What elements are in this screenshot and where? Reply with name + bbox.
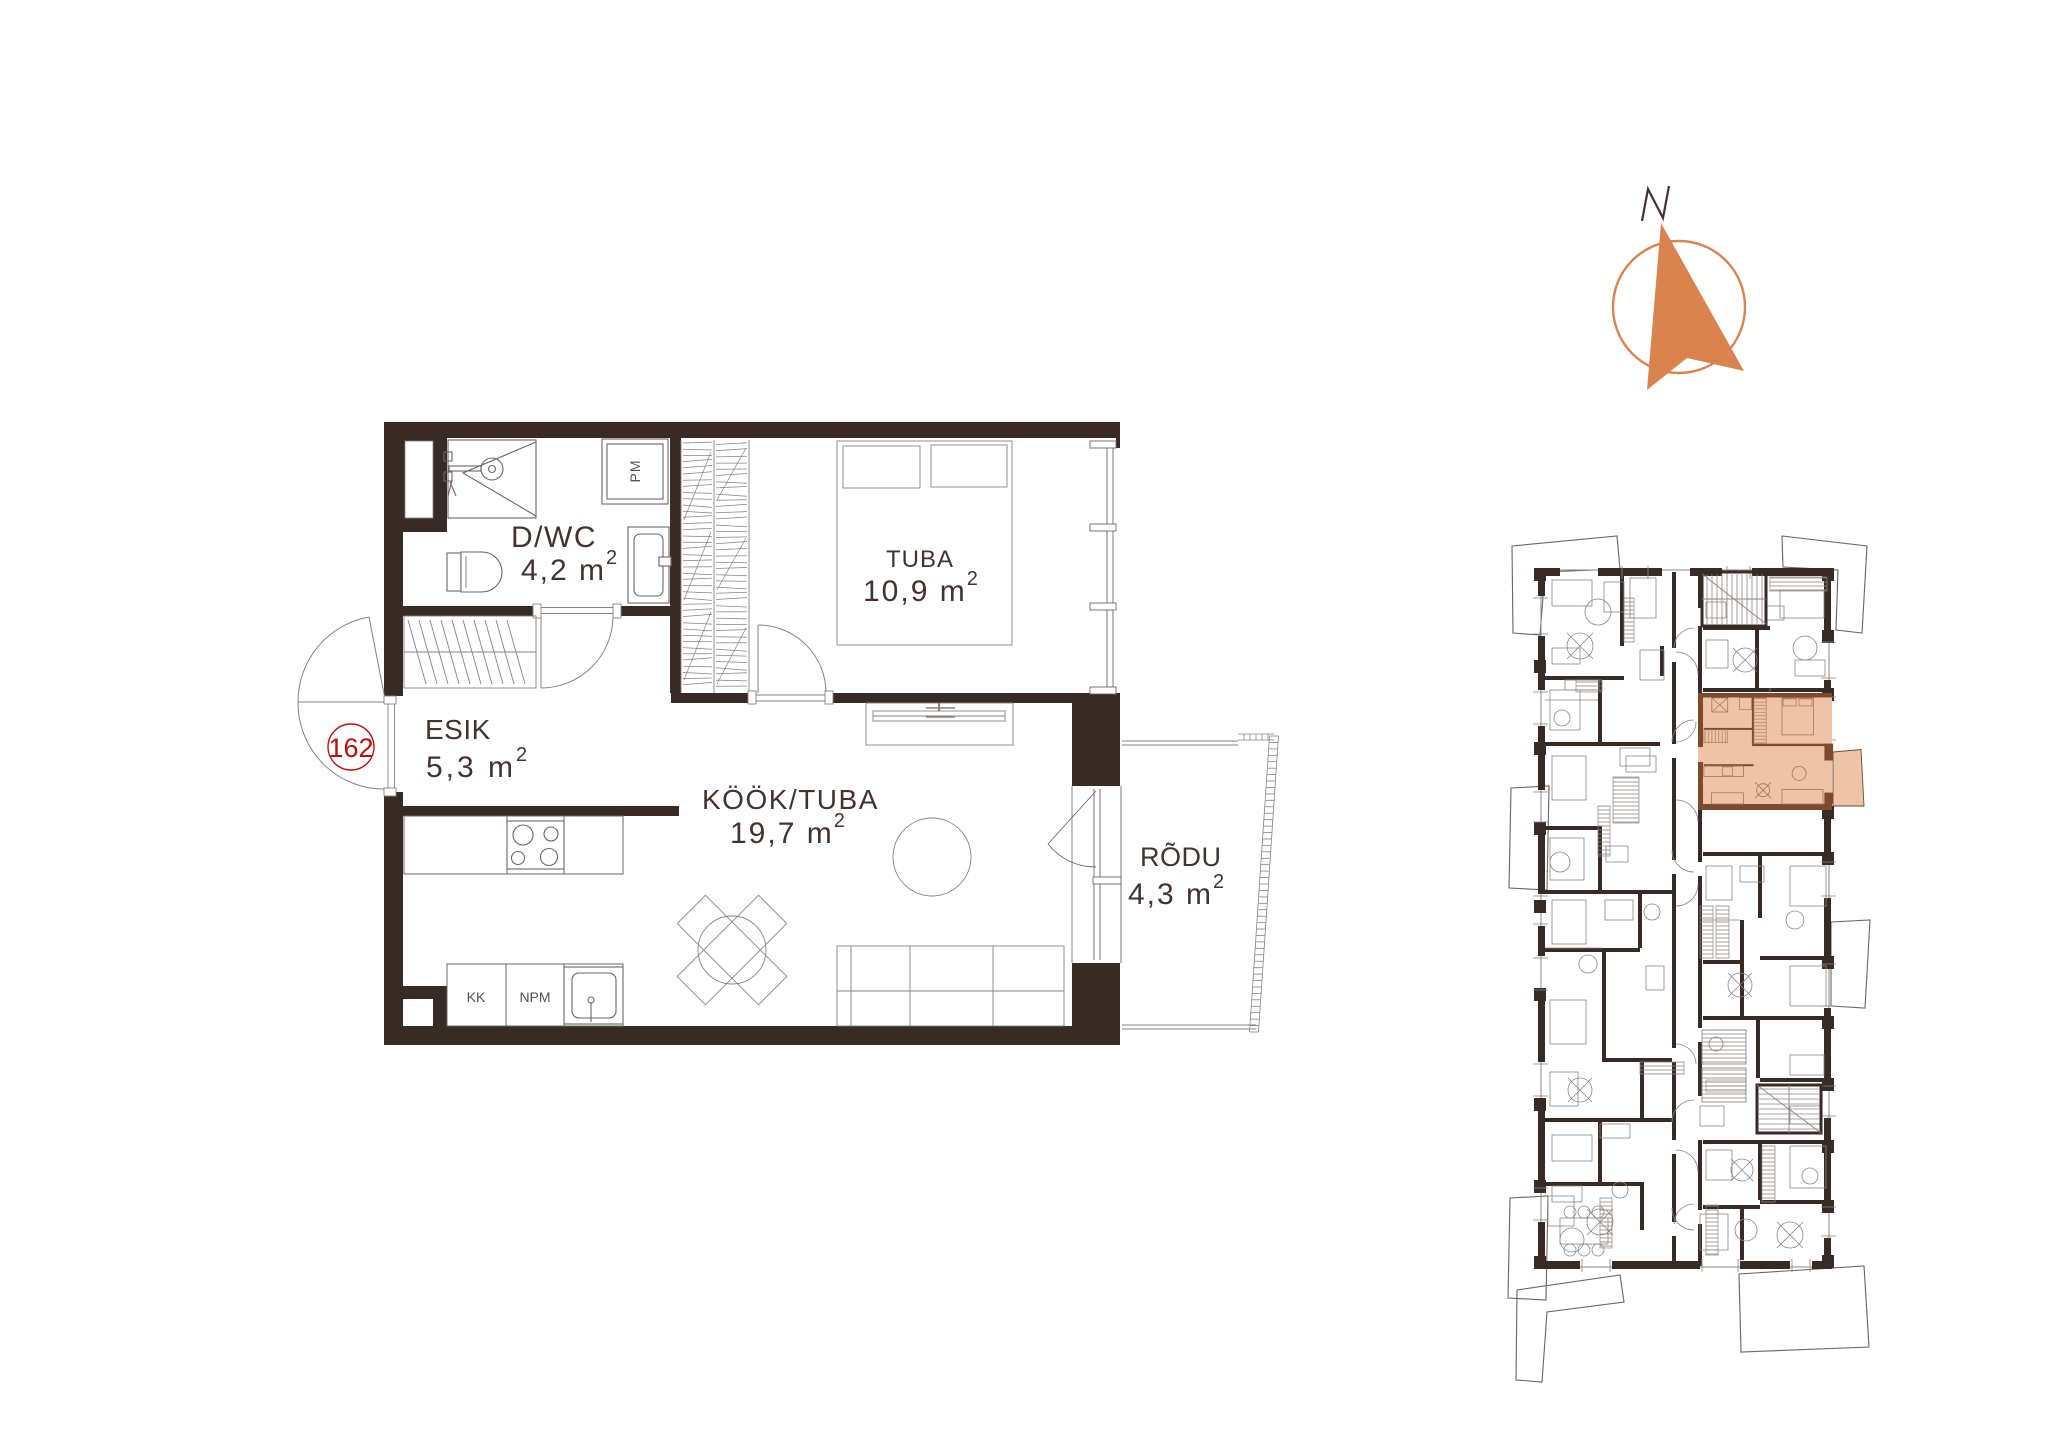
svg-text:NPM: NPM bbox=[519, 989, 550, 1005]
svg-text:TUBA: TUBA bbox=[886, 546, 954, 573]
svg-text:162: 162 bbox=[328, 733, 373, 763]
svg-text:KK: KK bbox=[467, 989, 486, 1005]
svg-text:D/WC: D/WC bbox=[511, 521, 597, 554]
svg-text:RÕDU: RÕDU bbox=[1140, 841, 1222, 872]
svg-text:PM: PM bbox=[627, 460, 643, 483]
svg-text:ESIK: ESIK bbox=[425, 714, 491, 745]
svg-text:KÖÖK/TUBA: KÖÖK/TUBA bbox=[702, 784, 879, 815]
